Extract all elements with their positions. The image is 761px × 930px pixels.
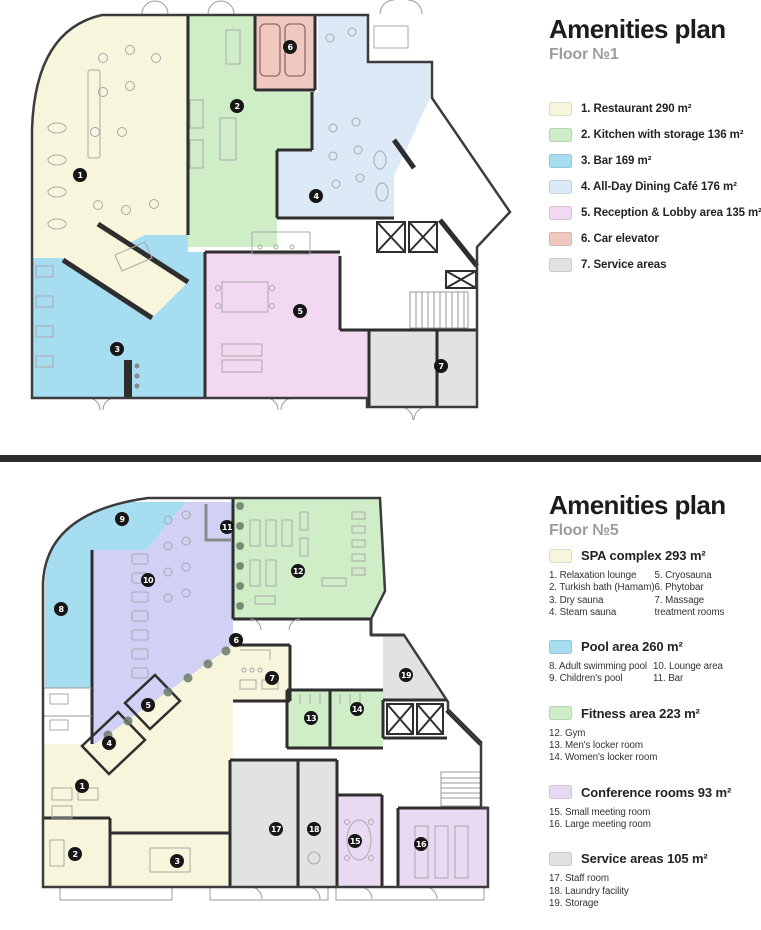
room-marker-6: 6 (283, 40, 297, 54)
room-marker-16: 16 (414, 837, 428, 851)
legend-group-title: Pool area 260 m² (581, 639, 683, 654)
legend-sub-item: 13. Men's locker room (549, 740, 657, 752)
room-marker-3: 3 (110, 342, 124, 356)
legend-swatch (549, 206, 572, 220)
legend-label: 3. Bar 169 m² (581, 155, 651, 167)
room-marker-12: 12 (291, 564, 305, 578)
floor-subtitle: Floor №1 (549, 46, 757, 64)
legend-group: Conference rooms 93 m² 15. Small meeting… (549, 785, 757, 832)
room-marker-3: 3 (170, 854, 184, 868)
floor5-panel: 12345678910111213141516171819 Amenities … (0, 462, 761, 904)
legend-swatch (549, 706, 572, 720)
legend-group-header: Pool area 260 m² (549, 639, 757, 654)
legend-swatch (549, 640, 572, 654)
legend-label: 6. Car elevator (581, 233, 659, 245)
room-marker-14: 14 (350, 702, 364, 716)
legend-swatch (549, 154, 572, 168)
room-marker-17: 17 (269, 822, 283, 836)
legend-item: 7. Service areas (549, 258, 757, 272)
region-storage (383, 635, 447, 701)
legend-group-items: 17. Staff room18. Laundry facility19. St… (549, 873, 757, 910)
legend-group-items: 8. Adult swimming pool9. Children's pool… (549, 661, 757, 686)
legend-group: Fitness area 223 m² 12. Gym13. Men's loc… (549, 706, 757, 765)
room-marker-10: 10 (141, 573, 155, 587)
legend-swatch (549, 785, 572, 799)
region-restaurant (32, 15, 188, 258)
legend-item: 3. Bar 169 m² (549, 154, 757, 168)
legend-group: Service areas 105 m² 17. Staff room18. L… (549, 851, 757, 910)
legend-group-header: Conference rooms 93 m² (549, 785, 757, 800)
legend-item: 5. Reception & Lobby area 135 m² (549, 206, 757, 220)
legend-sub-item: treatment rooms (655, 607, 758, 619)
legend-col-1: 17. Staff room18. Laundry facility19. St… (549, 873, 653, 910)
legend-group-header: Fitness area 223 m² (549, 706, 757, 721)
legend-group-title: SPA complex 293 m² (581, 548, 706, 563)
amenities-infographic: { "colors": { "restaurant": "#f7f6dc", "… (0, 0, 761, 904)
legend-sub-item: 19. Storage (549, 898, 653, 910)
legend-swatch (549, 128, 572, 142)
stairs-icon (441, 772, 481, 806)
legend-sub-item: 3. Dry sauna (549, 595, 655, 607)
stairs-icon (410, 292, 468, 328)
room-marker-5: 5 (141, 698, 155, 712)
balconies (60, 887, 484, 900)
legend-sub-item: 11. Bar (653, 673, 757, 685)
legend-col-1: 15. Small meeting room16. Large meeting … (549, 807, 653, 832)
legend-sub-item: 10. Lounge area (653, 661, 757, 673)
legend-sub-item: 16. Large meeting room (549, 819, 653, 831)
page-title: Amenities plan (549, 490, 757, 520)
room-marker-7: 7 (265, 671, 279, 685)
room-marker-2: 2 (68, 847, 82, 861)
bar-stools (135, 364, 140, 389)
floor1-panel: 1234567 Amenities plan Floor №1 1. Resta… (0, 0, 761, 455)
floor1-plan-svg (0, 0, 540, 450)
room-marker-9: 9 (115, 512, 129, 526)
room-marker-4: 4 (309, 189, 323, 203)
room-marker-7: 7 (434, 359, 448, 373)
legend-group-header: Service areas 105 m² (549, 851, 757, 866)
floor1-plan: 1234567 (0, 0, 540, 450)
legend-col-2 (653, 873, 757, 910)
legend-item: 1. Restaurant 290 m² (549, 102, 757, 116)
room-marker-8: 8 (54, 602, 68, 616)
region-gym (233, 498, 385, 619)
legend-sub-item: 6. Phytobar (655, 582, 758, 594)
region-staff-laundry (230, 760, 337, 887)
legend-label: 4. All-Day Dining Café 176 m² (581, 181, 737, 193)
legend-sub-item: 5. Cryosauna (655, 570, 758, 582)
room-marker-13: 13 (304, 711, 318, 725)
bar-counter (124, 360, 132, 398)
legend-col-1: 12. Gym13. Men's locker room14. Women's … (549, 728, 657, 765)
legend-sub-item: 4. Steam sauna (549, 607, 655, 619)
floor1-legend: Amenities plan Floor №1 1. Restaurant 29… (549, 14, 757, 284)
legend-sub-item: 18. Laundry facility (549, 886, 653, 898)
legend-sub-item: 2. Turkish bath (Hamam) (549, 582, 655, 594)
section-divider (0, 455, 761, 462)
legend-swatch (549, 180, 572, 194)
floor5-plan-svg (0, 488, 540, 904)
elevator-icons (377, 222, 476, 288)
legend-item: 4. All-Day Dining Café 176 m² (549, 180, 757, 194)
room-marker-11: 11 (220, 520, 234, 534)
legend-sub-item: 12. Gym (549, 728, 657, 740)
legend-sub-item: 15. Small meeting room (549, 807, 653, 819)
legend-sub-item: 9. Children's pool (549, 673, 653, 685)
region-reception (205, 252, 368, 398)
legend-sub-item: 8. Adult swimming pool (549, 661, 653, 673)
room-marker-19: 19 (399, 668, 413, 682)
room-marker-5: 5 (293, 304, 307, 318)
legend-swatch (549, 102, 572, 116)
legend-group-items: 1. Relaxation lounge2. Turkish bath (Ham… (549, 570, 757, 619)
legend-label: 2. Kitchen with storage 136 m² (581, 129, 744, 141)
elevator-icons (387, 704, 443, 734)
room-marker-4: 4 (102, 736, 116, 750)
region-service (367, 330, 477, 407)
legend-label: 5. Reception & Lobby area 135 m² (581, 207, 761, 219)
room-marker-2: 2 (230, 99, 244, 113)
legend-label: 1. Restaurant 290 m² (581, 103, 692, 115)
legend-swatch (549, 549, 572, 563)
legend-list: 1. Restaurant 290 m² 2. Kitchen with sto… (549, 102, 757, 272)
legend-group: Pool area 260 m² 8. Adult swimming pool9… (549, 639, 757, 686)
floor5-legend: Amenities plan Floor №5 SPA complex 293 … (549, 490, 757, 930)
legend-sub-item: 17. Staff room (549, 873, 653, 885)
legend-swatch (549, 232, 572, 246)
legend-sub-item: 14. Women's locker room (549, 752, 657, 764)
floor5-plan: 12345678910111213141516171819 (0, 488, 540, 904)
legend-swatch (549, 258, 572, 272)
room-marker-6: 6 (229, 633, 243, 647)
room-marker-1: 1 (75, 779, 89, 793)
region-meeting-large (398, 808, 488, 887)
legend-item: 2. Kitchen with storage 136 m² (549, 128, 757, 142)
legend-col-2: 10. Lounge area11. Bar (653, 661, 757, 686)
legend-col-2 (653, 807, 757, 832)
legend-group: SPA complex 293 m² 1. Relaxation lounge2… (549, 548, 757, 619)
legend-group-title: Service areas 105 m² (581, 851, 708, 866)
legend-group-title: Fitness area 223 m² (581, 706, 700, 721)
legend-sub-item: 1. Relaxation lounge (549, 570, 655, 582)
room-marker-15: 15 (348, 834, 362, 848)
room-marker-1: 1 (73, 168, 87, 182)
legend-swatch (549, 852, 572, 866)
legend-group-items: 15. Small meeting room16. Large meeting … (549, 807, 757, 832)
room-marker-18: 18 (307, 822, 321, 836)
page-title: Amenities plan (549, 14, 757, 44)
legend-label: 7. Service areas (581, 259, 666, 271)
legend-group-header: SPA complex 293 m² (549, 548, 757, 563)
floor-subtitle: Floor №5 (549, 522, 757, 540)
legend-col-1: 1. Relaxation lounge2. Turkish bath (Ham… (549, 570, 655, 619)
legend-col-2: 5. Cryosauna6. Phytobar7. Massagetreatme… (655, 570, 758, 619)
legend-groups: SPA complex 293 m² 1. Relaxation lounge2… (549, 548, 757, 910)
legend-group-title: Conference rooms 93 m² (581, 785, 731, 800)
legend-group-items: 12. Gym13. Men's locker room14. Women's … (549, 728, 757, 765)
region-lockers (287, 690, 383, 748)
legend-item: 6. Car elevator (549, 232, 757, 246)
legend-col-2 (657, 728, 757, 765)
legend-sub-item: 7. Massage (655, 595, 758, 607)
legend-col-1: 8. Adult swimming pool9. Children's pool (549, 661, 653, 686)
